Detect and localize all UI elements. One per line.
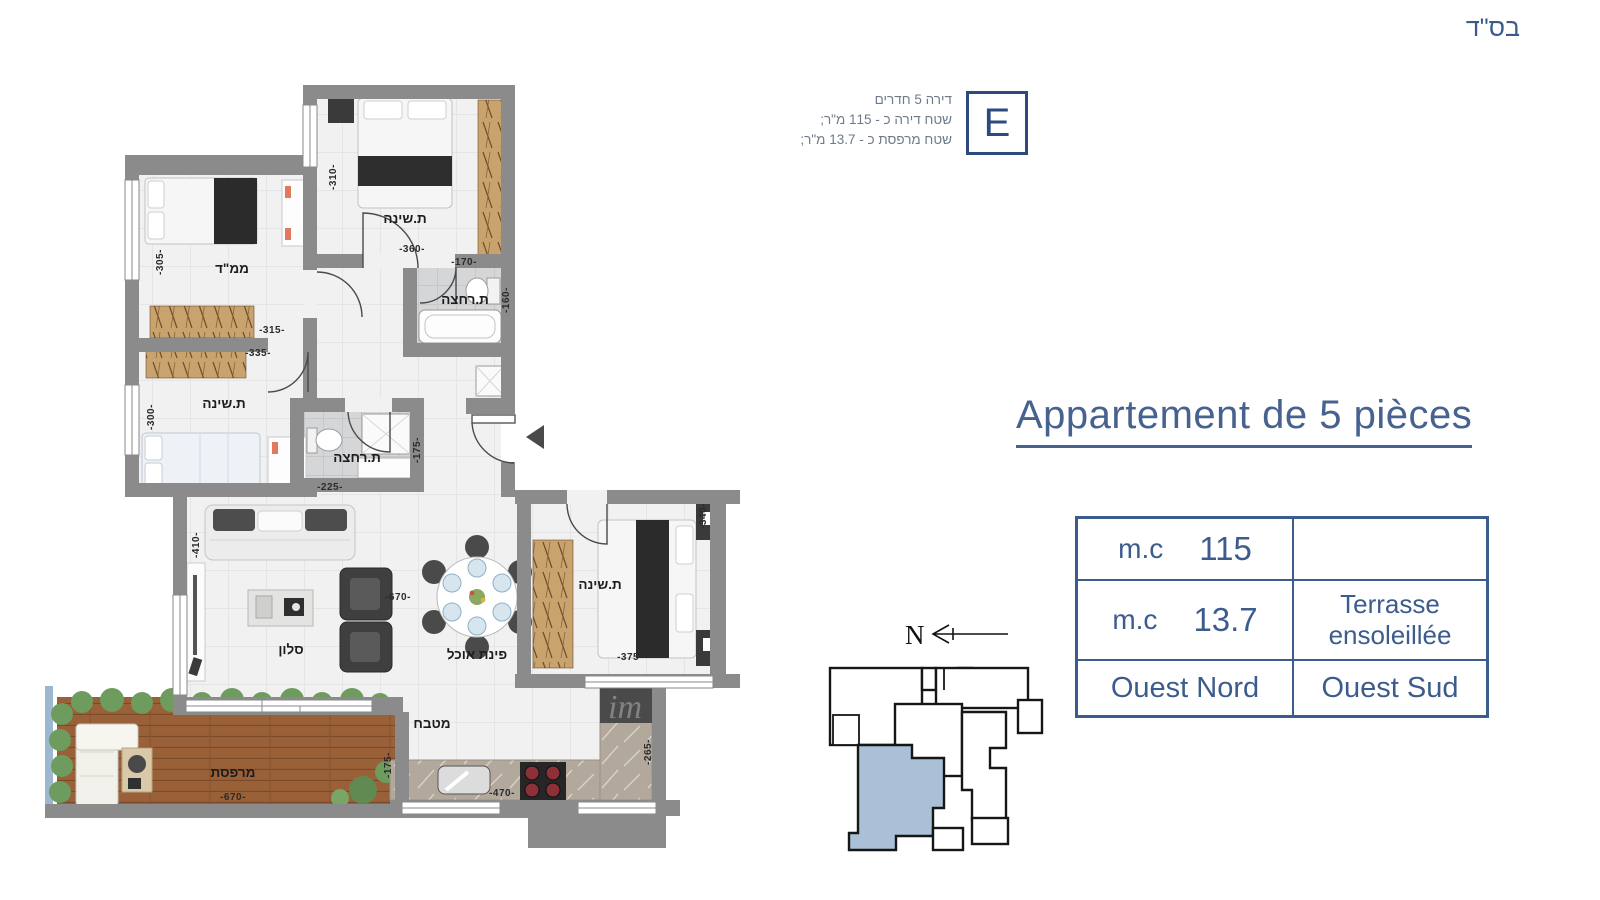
terrace-table <box>128 755 146 773</box>
room-label-salon: סלון <box>278 642 303 657</box>
closet-mamad <box>150 306 254 338</box>
room-label-bedroom-left: ת.שינה <box>202 396 245 411</box>
window <box>402 802 500 814</box>
building-locator <box>830 668 1042 850</box>
dim-label: -670- <box>220 792 246 803</box>
window <box>578 802 656 814</box>
window <box>173 595 187 695</box>
dim-label: -360- <box>399 244 425 255</box>
dim-label: -175- <box>383 752 394 778</box>
room-label-bedroom-right: ת.שינה <box>578 577 621 592</box>
spec-note-line: ensoleillée <box>1329 620 1452 650</box>
north-label: N <box>905 620 925 650</box>
terrace-firepit <box>128 778 141 789</box>
closet-bedroom-top <box>478 100 502 258</box>
entrance-marker-icon <box>526 425 544 449</box>
unit-info-line: דירה 5 חדרים <box>752 90 952 110</box>
dim-label: -410- <box>191 532 202 558</box>
dim-label: -470- <box>489 788 515 799</box>
bsd-text: בס"ד <box>1466 14 1520 43</box>
room-label-bath-top: ת.רחצה <box>441 292 489 307</box>
spec-unit: m.c <box>1118 533 1163 565</box>
dim-label: -340- <box>698 503 709 529</box>
unit-info: דירה 5 חדרים שטח דירה כ - 115 מ"ר; שטח מ… <box>752 90 952 150</box>
dim-label: -170- <box>451 257 477 268</box>
kitchen-sink <box>438 766 490 794</box>
dim-label: -335- <box>245 348 271 359</box>
compass: N <box>905 620 1008 650</box>
room-label-bedroom-top: ת.שינה <box>383 211 426 226</box>
window <box>125 385 139 455</box>
spec-cell-terrace-note: Terrasse ensoleillée <box>1294 581 1486 661</box>
room-label-kitchen: מטבח <box>413 716 450 731</box>
room-label-mamad: ממ"ד <box>215 261 249 276</box>
unit-info-line: שטח דירה כ - 115 מ"ר; <box>752 110 952 130</box>
spec-value: 115 <box>1199 530 1252 568</box>
bed-mamad <box>145 178 308 246</box>
unit-letter-badge: E <box>966 91 1028 155</box>
locator-highlight-unit <box>849 745 944 850</box>
dim-label: -310- <box>328 164 339 190</box>
spec-cell-area: m.c 115 <box>1078 519 1294 581</box>
dim-label: -175- <box>412 437 423 463</box>
sofa <box>205 505 355 560</box>
spec-note-line: Terrasse <box>1340 589 1440 619</box>
dim-label: -670- <box>385 592 411 603</box>
spec-cell-empty <box>1294 519 1486 581</box>
bed-left <box>142 433 306 490</box>
spec-cell-orientation-right: Ouest Sud <box>1294 661 1486 715</box>
stove <box>520 762 566 800</box>
north-arrow-icon <box>933 625 1008 643</box>
page-title: Appartement de 5 pièces <box>1016 393 1472 448</box>
spec-table: m.c 115 m.c 13.7 Terrasse ensoleillée Ou… <box>1075 516 1489 718</box>
orientation-value: Ouest Nord <box>1111 672 1259 705</box>
dim-label: -160- <box>501 287 512 313</box>
dim-label: -300- <box>146 404 157 430</box>
orientation-value: Ouest Sud <box>1321 672 1458 705</box>
armchairs <box>340 568 392 672</box>
unit-letter: E <box>984 101 1011 146</box>
room-label-dining: פינת אוכל <box>447 647 508 662</box>
room-label-terrace: מרפסת <box>211 765 256 780</box>
window <box>125 180 139 280</box>
watermark: im <box>608 689 642 726</box>
window <box>585 676 713 688</box>
dim-label: -265- <box>643 739 654 765</box>
spec-cell-orientation-left: Ouest Nord <box>1078 661 1294 715</box>
floor-plan: -310- -360- -170- -160- -305- -315- -335… <box>45 85 740 848</box>
unit-info-line: שטח מרפסת כ - 13.7 מ"ר; <box>752 130 952 150</box>
dim-label: -225- <box>317 482 343 493</box>
room-label-bath-mid: ת.רחצה <box>333 450 381 465</box>
page: -310- -360- -170- -160- -305- -315- -335… <box>0 0 1600 900</box>
window <box>303 105 317 167</box>
closet-bedroom-left <box>146 348 246 378</box>
dim-label: -315- <box>259 325 285 336</box>
spec-unit: m.c <box>1112 604 1157 636</box>
coffee-table <box>248 590 313 626</box>
spec-value: 13.7 <box>1193 601 1257 639</box>
spec-cell-terrace-area: m.c 13.7 <box>1078 581 1294 661</box>
dim-label: -305- <box>155 249 166 275</box>
tv-console <box>187 563 205 681</box>
closet-bedroom-right <box>533 540 573 668</box>
sliding-door <box>186 700 372 712</box>
dim-label: -375- <box>617 652 643 663</box>
